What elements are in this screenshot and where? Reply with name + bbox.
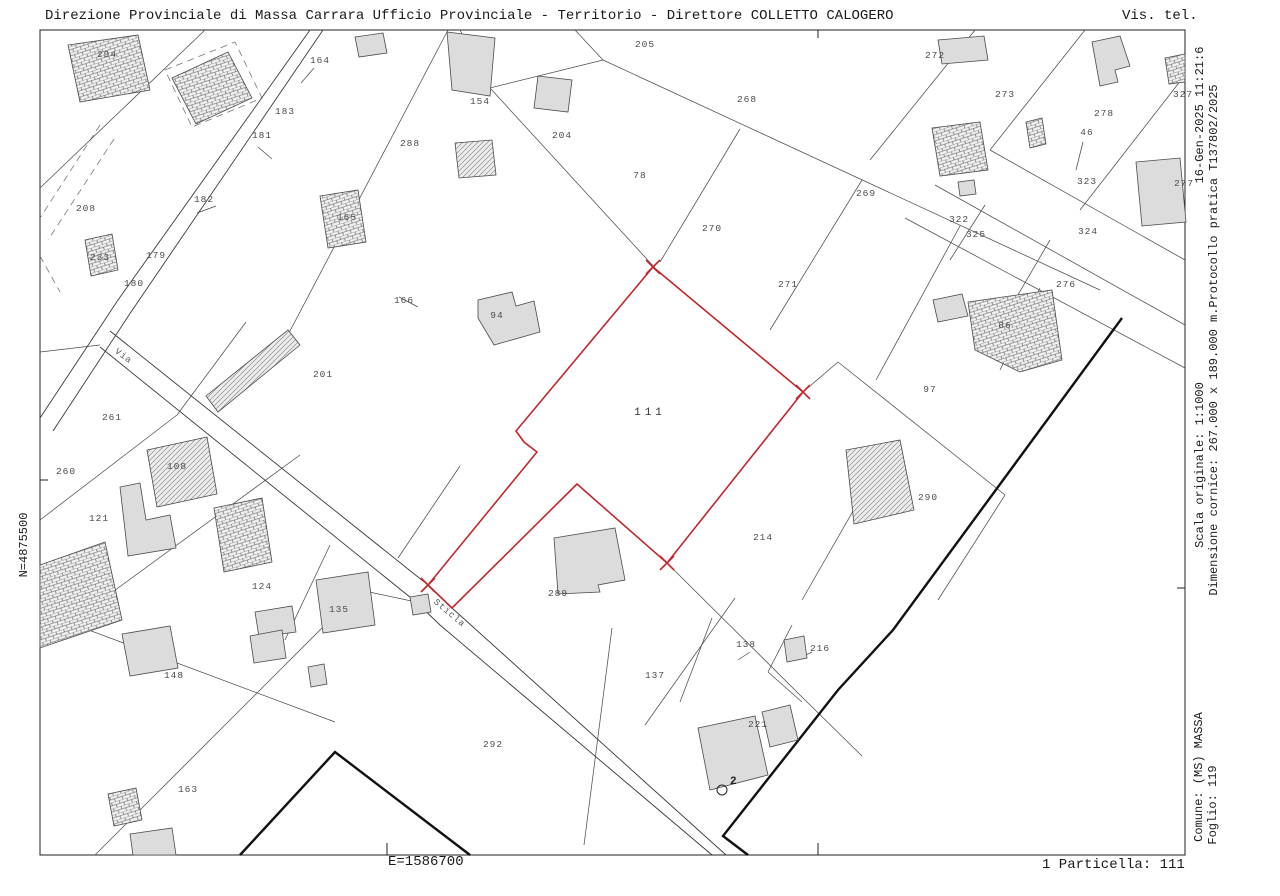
parcel-label-86: 86: [998, 320, 1011, 331]
parcel-label-164: 164: [310, 55, 330, 66]
building-hatched: [846, 440, 914, 524]
road-label-via: Via: [113, 347, 134, 367]
map-frame: [40, 30, 1185, 855]
parcel-label-201: 201: [313, 369, 333, 380]
parcel-label-292: 292: [483, 739, 503, 750]
building: [316, 572, 375, 633]
thick-boundary-line: [240, 318, 1122, 855]
parcel-label-148: 148: [164, 670, 184, 681]
parcel-label-135: 135: [329, 604, 349, 615]
parcel-label-271: 271: [778, 279, 798, 290]
building-hatched: [1165, 54, 1185, 84]
building-hatched: [40, 542, 122, 648]
parcel-label-272: 272: [925, 50, 945, 61]
parcel-label-276: 276: [1056, 279, 1076, 290]
parcel-label-78: 78: [633, 170, 646, 181]
parcel-label-138: 138: [736, 639, 756, 650]
parcel-label-205: 205: [635, 39, 655, 50]
parcel-label-325: 325: [966, 229, 986, 240]
buildings: [40, 32, 1186, 855]
building: [784, 636, 807, 662]
parcel-label-290: 290: [918, 492, 938, 503]
building-hatched: [206, 330, 300, 412]
parcel-label-289: 289: [548, 588, 568, 599]
building: [410, 594, 431, 615]
parcel-label-181: 181: [252, 130, 272, 141]
parcel-label-278: 278: [1094, 108, 1114, 119]
parcel-label-154: 154: [470, 96, 490, 107]
parcel-label-216: 216: [810, 643, 830, 654]
building: [355, 33, 387, 57]
building-hatched: [932, 122, 988, 176]
parcel-label-182: 182: [194, 194, 214, 205]
building: [554, 528, 625, 594]
building: [122, 626, 178, 676]
parcel-label-277: 277: [1174, 178, 1194, 189]
building: [958, 180, 976, 196]
parcel-label-180: 180: [124, 278, 144, 289]
building-hatched: [1026, 118, 1046, 148]
parcel-label-179: 179: [146, 250, 166, 261]
parcel-label-46: 46: [1080, 127, 1093, 138]
parcel-label-269: 269: [856, 188, 876, 199]
building-hatched: [108, 788, 142, 826]
parcel-label-323: 323: [1077, 176, 1097, 187]
parcel-label-166: 166: [394, 295, 414, 306]
building-hatched: [455, 140, 496, 178]
building: [1136, 158, 1186, 226]
cadastral-map-canvas: 2941641831812882081821791802331651662051…: [0, 0, 1280, 896]
parcel-label-327: 327: [1173, 89, 1193, 100]
building: [534, 76, 572, 112]
building: [938, 36, 988, 64]
parcel-label-208: 208: [76, 203, 96, 214]
building-hatched: [147, 437, 217, 507]
road-label-sticla: Sticla: [431, 597, 467, 629]
parcel-boundary-lines: [40, 30, 1185, 855]
parcel-label-183: 183: [275, 106, 295, 117]
building-hatched: [214, 498, 272, 572]
parcel-label-324: 324: [1078, 226, 1098, 237]
parcel-label-261: 261: [102, 412, 122, 423]
building: [1092, 36, 1130, 86]
parcel-label-273: 273: [995, 89, 1015, 100]
parcel-label-165: 165: [337, 212, 357, 223]
building: [933, 294, 968, 322]
parcel-label-111: 111: [634, 407, 666, 419]
parcel-label-260: 260: [56, 466, 76, 477]
parcel-label-108: 108: [167, 461, 187, 472]
parcel-label-163: 163: [178, 784, 198, 795]
survey-point-label: 2: [730, 776, 737, 788]
building: [250, 630, 286, 663]
parcel-label-94: 94: [490, 310, 503, 321]
parcel-label-288: 288: [400, 138, 420, 149]
parcel-label-233: 233: [90, 252, 110, 263]
building: [130, 828, 176, 855]
building-hatched: [68, 35, 150, 102]
parcel-label-322: 322: [949, 214, 969, 225]
building: [478, 292, 540, 345]
parcel-label-121: 121: [89, 513, 109, 524]
parcel-label-268: 268: [737, 94, 757, 105]
parcel-label-137: 137: [645, 670, 665, 681]
parcel-label-97: 97: [923, 384, 936, 395]
building-hatched: [172, 52, 252, 124]
parcel-label-204: 204: [552, 130, 572, 141]
building-hatched: [968, 290, 1062, 372]
parcel-label-294: 294: [97, 49, 117, 60]
parcel-label-221: 221: [748, 719, 768, 730]
parcel-label-270: 270: [702, 223, 722, 234]
parcel-label-124: 124: [252, 581, 272, 592]
building: [447, 32, 495, 96]
building: [308, 664, 327, 687]
parcel-label-214: 214: [753, 532, 773, 543]
